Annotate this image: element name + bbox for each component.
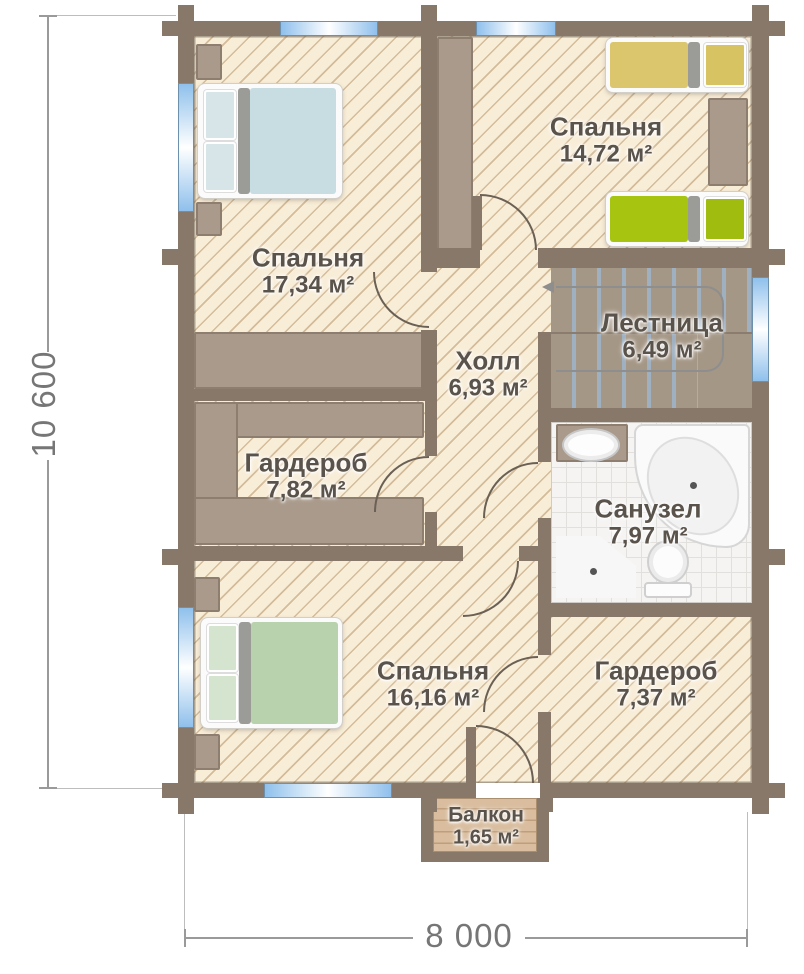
single-bed-lime — [606, 192, 748, 246]
wall-between-top-bedrooms — [421, 21, 437, 272]
log-end — [752, 5, 769, 21]
nightstand — [194, 734, 220, 770]
wall-bathroom-bottom — [538, 603, 769, 617]
pillow — [704, 43, 746, 87]
wall-bedroom-tl-bottom — [178, 389, 437, 401]
log-end — [162, 783, 178, 798]
wall-bedroom-bottom-top — [519, 546, 538, 561]
dimension-line-horizontal — [185, 937, 413, 939]
wall-hall-stairs — [538, 332, 551, 462]
room-name: Спальня — [252, 244, 364, 273]
closet-unit — [437, 37, 473, 250]
nightstand — [196, 202, 222, 236]
room-area: 7,37 м² — [595, 685, 718, 711]
room-label-bedroom-bottom: Спальня 16,16 м² — [377, 657, 489, 712]
log-end — [752, 798, 769, 814]
dimension-label-vertical: 10 600 — [25, 351, 63, 458]
window — [280, 21, 378, 36]
exterior-wall-top — [178, 21, 769, 36]
extension-line — [747, 812, 748, 944]
wall-bedroom-tr-bottom — [538, 248, 769, 268]
log-end — [769, 21, 785, 36]
room-label-bathroom: Санузел 7,97 м² — [595, 495, 702, 550]
wall-bedroom-bottom-top — [178, 546, 463, 561]
shower-drain — [590, 568, 597, 575]
log-end — [769, 549, 785, 565]
wall-bedroom-tr-bottom — [437, 248, 480, 268]
extension-line — [42, 788, 176, 789]
dimension-tick — [184, 929, 186, 947]
dimension-tick — [746, 929, 748, 947]
bed-headboard-divider — [688, 196, 700, 242]
room-name: Гардероб — [595, 657, 718, 686]
log-end — [162, 249, 178, 265]
window — [264, 783, 392, 798]
room-area: 6,93 м² — [448, 375, 527, 401]
room-name: Балкон — [448, 803, 524, 826]
cabinet — [708, 98, 748, 186]
nightstand — [194, 577, 220, 612]
window — [476, 21, 556, 36]
bed-blanket — [250, 88, 336, 194]
door-leaf — [466, 727, 476, 783]
wall-wardrobe-right-left — [538, 617, 551, 655]
bed-headboard-divider — [688, 42, 700, 88]
wall-wardrobe-left-right — [425, 401, 437, 456]
pillow — [207, 624, 238, 672]
room-area: 17,34 м² — [252, 272, 364, 298]
pillow — [207, 674, 238, 722]
log-end — [178, 5, 194, 21]
window — [178, 607, 194, 728]
bed-headboard-divider — [238, 88, 250, 194]
log-end — [421, 5, 437, 21]
window — [752, 277, 769, 382]
floor-plan: Спальня 17,34 м² Спальня 14,72 м² Лестни… — [0, 0, 804, 974]
exterior-wall-bottom — [540, 783, 769, 798]
room-area: 14,72 м² — [550, 141, 662, 167]
extension-line — [42, 15, 176, 16]
room-label-bedroom-top-right: Спальня 14,72 м² — [550, 113, 662, 168]
room-label-bedroom-top-left: Спальня 17,34 м² — [252, 244, 364, 299]
bed-headboard-divider — [239, 622, 251, 724]
room-name: Спальня — [377, 657, 489, 686]
room-area: 7,82 м² — [245, 477, 368, 503]
room-area: 1,65 м² — [448, 827, 524, 849]
room-label-hall: Холл 6,93 м² — [448, 347, 527, 402]
dimension-line-vertical — [47, 16, 49, 352]
room-name: Спальня — [550, 113, 662, 142]
room-area: 16,16 м² — [377, 685, 489, 711]
pillow — [204, 142, 236, 192]
pillow — [704, 197, 746, 241]
sink — [562, 428, 620, 462]
toilet-tank — [644, 582, 692, 598]
room-area: 7,97 м² — [595, 523, 702, 549]
stairs-direction-arrow — [542, 281, 554, 293]
log-end — [769, 783, 785, 798]
room-name: Санузел — [595, 495, 702, 524]
dimension-tick — [39, 787, 57, 789]
bed-blanket — [610, 42, 688, 88]
log-end — [162, 21, 178, 36]
single-bed-yellow — [606, 38, 748, 92]
dimension-line-horizontal — [525, 937, 748, 939]
dimension-tick — [39, 15, 57, 17]
room-name: Лестница — [601, 309, 723, 338]
bed-blanket — [610, 196, 688, 242]
double-bed-blue — [198, 84, 342, 198]
nightstand — [196, 44, 222, 80]
window — [178, 83, 194, 212]
room-label-wardrobe-left: Гардероб 7,82 м² — [245, 449, 368, 504]
log-end — [178, 798, 194, 814]
balcony-wall-bottom — [421, 852, 549, 862]
double-bed-green — [201, 618, 342, 728]
log-end — [769, 249, 785, 265]
wall-wardrobe-right-left — [538, 712, 551, 783]
wardrobe-unit — [194, 332, 424, 389]
room-label-wardrobe-right: Гардероб 7,37 м² — [595, 657, 718, 712]
room-label-balcony: Балкон 1,65 м² — [448, 803, 524, 848]
bed-blanket — [251, 622, 338, 724]
room-name: Холл — [448, 347, 527, 376]
room-name: Гардероб — [245, 449, 368, 478]
extension-line — [184, 812, 185, 944]
dimension-label-horizontal: 8 000 — [425, 917, 513, 955]
wall-stairs-bathroom — [538, 408, 769, 422]
log-end — [162, 549, 178, 565]
dimension-line-vertical — [47, 460, 49, 788]
pillow — [204, 90, 236, 140]
room-area: 6,49 м² — [601, 337, 723, 363]
room-label-staircase: Лестница 6,49 м² — [601, 309, 723, 364]
bathtub-drain — [690, 482, 697, 489]
wall-wardrobe-left-right — [425, 512, 437, 546]
